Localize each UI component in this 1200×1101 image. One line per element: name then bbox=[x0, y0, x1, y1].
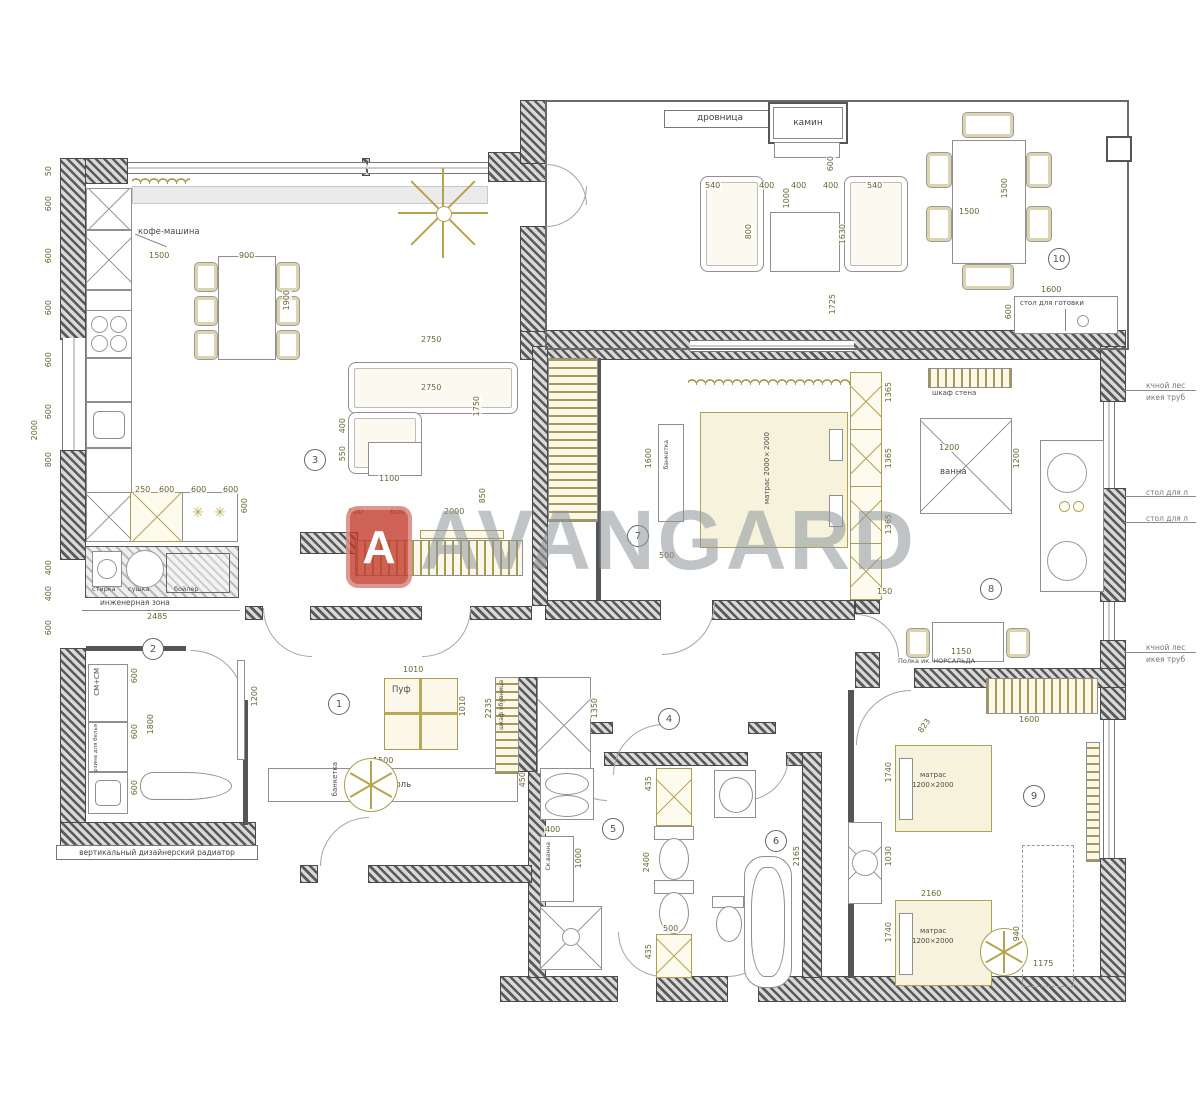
annotation: кчной лес bbox=[1146, 643, 1185, 652]
dimension-label: 150 bbox=[876, 588, 893, 596]
leader-line bbox=[1124, 652, 1196, 653]
sink-basin bbox=[93, 411, 125, 439]
dimension-label: 600 bbox=[44, 352, 54, 367]
coffee-table bbox=[770, 212, 840, 272]
wall bbox=[520, 226, 546, 332]
dimension-label: 600 bbox=[190, 486, 207, 494]
faucet bbox=[1059, 501, 1070, 512]
mattress-size: 1200×2000 bbox=[912, 782, 954, 790]
dimension-label: 50 bbox=[44, 166, 54, 176]
window-sill-radiator bbox=[1086, 742, 1100, 862]
chair bbox=[276, 330, 300, 360]
shoe-cabinet-label: шкаф обувница bbox=[499, 680, 505, 730]
dimension-label: 540 bbox=[866, 182, 883, 190]
dimension-label: 1630 bbox=[838, 224, 848, 244]
pouf-label: Пуф bbox=[392, 686, 411, 695]
washbasin-counter bbox=[1040, 440, 1104, 592]
dimension-label: 1175 bbox=[1032, 960, 1054, 968]
closet bbox=[537, 677, 591, 774]
shelf-table bbox=[932, 622, 1004, 662]
dimension-line bbox=[82, 610, 240, 611]
kitchen-cabinet bbox=[130, 492, 184, 542]
dimension-label: 400 bbox=[44, 586, 54, 601]
curtain bbox=[132, 175, 190, 184]
dimension-label: 400 bbox=[544, 826, 561, 834]
ironing-board bbox=[140, 772, 232, 800]
chair bbox=[926, 206, 952, 242]
burner-icon: ✳ bbox=[214, 505, 226, 521]
kitchen-cabinet bbox=[86, 492, 132, 542]
mattress-size: 1200×2000 bbox=[912, 938, 954, 946]
curtain bbox=[688, 376, 856, 385]
burner-ring bbox=[91, 316, 108, 333]
wall bbox=[500, 976, 618, 1002]
dimension-label: 600 bbox=[44, 300, 54, 315]
dimension-label: 400 bbox=[44, 560, 54, 575]
coffee-machine-label: кофе-машина bbox=[138, 228, 200, 237]
laundry-basket-label: корзина для белья bbox=[94, 724, 100, 779]
dimension-label: 400 bbox=[758, 182, 775, 190]
wall bbox=[470, 606, 532, 620]
dimension-label: 1740 bbox=[884, 762, 894, 782]
washbasin bbox=[545, 773, 589, 795]
burner-ring bbox=[110, 335, 127, 352]
dimension-label: 1500 bbox=[148, 252, 170, 260]
dimension-label: 800 bbox=[44, 452, 54, 467]
dimension-label: 1000 bbox=[782, 188, 792, 208]
sink-basin bbox=[95, 780, 121, 806]
wall bbox=[545, 600, 661, 620]
dimension-label: 1600 bbox=[644, 448, 654, 468]
wardrobe-cell bbox=[850, 372, 882, 431]
dimension-label: 600 bbox=[1004, 304, 1014, 319]
room-number-6: 6 bbox=[765, 830, 787, 852]
toilet-bowl bbox=[716, 906, 742, 942]
chair bbox=[1006, 628, 1030, 658]
bath-cabinet-label: Ск.ванна bbox=[546, 842, 552, 870]
wall bbox=[748, 722, 776, 734]
door-arc bbox=[263, 608, 312, 657]
shelf-label: Полка ик. НОРСАЛЬДА bbox=[898, 658, 975, 665]
dryer bbox=[126, 550, 164, 588]
bathtub bbox=[744, 856, 792, 988]
dining-table bbox=[952, 140, 1026, 264]
dimension-label: 600 bbox=[130, 724, 140, 739]
wall bbox=[86, 646, 186, 651]
star-light bbox=[398, 168, 488, 258]
bench-stool bbox=[344, 758, 398, 812]
room-number-8: 8 bbox=[980, 578, 1002, 600]
wall bbox=[60, 158, 86, 340]
dimension-label: 435 bbox=[644, 944, 654, 959]
chair bbox=[194, 296, 218, 326]
star-center bbox=[436, 206, 452, 222]
dimension-label: 450 bbox=[518, 772, 528, 787]
washbasin-counter bbox=[714, 770, 756, 818]
door-arc bbox=[320, 817, 369, 866]
wall bbox=[802, 752, 822, 978]
firewood-box-label: дровница bbox=[664, 110, 776, 128]
bench-label: банкетка bbox=[332, 762, 339, 796]
radiator-label: вертикальный дизайнерский радиатор bbox=[56, 845, 258, 860]
dimension-label: 1030 bbox=[884, 846, 894, 866]
room-number-5: 5 bbox=[602, 818, 624, 840]
dimension-label: 600 bbox=[826, 156, 836, 171]
bathtub-inner bbox=[751, 867, 785, 977]
kitchen-cabinet bbox=[86, 188, 132, 230]
washbasin bbox=[545, 795, 589, 817]
dimension-label: 1365 bbox=[884, 448, 894, 468]
wall bbox=[656, 976, 728, 1002]
dimension-label: 550 bbox=[338, 446, 348, 461]
kitchen-cabinet bbox=[182, 492, 238, 542]
hob bbox=[86, 310, 132, 358]
window bbox=[1103, 602, 1115, 640]
room-number-9: 9 bbox=[1023, 785, 1045, 807]
column-post bbox=[1106, 136, 1132, 162]
plumbing-shaft bbox=[656, 934, 692, 978]
washbasin bbox=[1047, 541, 1087, 581]
room-number-1: 1 bbox=[328, 693, 350, 715]
dimension-label: 1200 bbox=[250, 686, 260, 706]
kitchen-cabinet bbox=[86, 290, 132, 312]
window bbox=[128, 162, 366, 174]
dimension-label: 600 bbox=[130, 668, 140, 683]
dimension-label: 600 bbox=[44, 248, 54, 263]
dimension-label: 1800 bbox=[146, 714, 156, 734]
mattress-label: матрас bbox=[920, 772, 946, 780]
washer bbox=[92, 551, 122, 587]
radiator-band bbox=[986, 678, 1098, 714]
kitchen-sink bbox=[86, 402, 132, 448]
sofa bbox=[700, 176, 764, 272]
dimension-label: 400 bbox=[790, 182, 807, 190]
wardrobe-cell bbox=[850, 429, 882, 488]
chair bbox=[962, 264, 1014, 290]
dimension-label: 2235 bbox=[484, 698, 494, 718]
burner-ring bbox=[110, 316, 127, 333]
sofa bbox=[844, 176, 908, 272]
washbasin-counter bbox=[540, 768, 594, 820]
room-number-3: 3 bbox=[304, 449, 326, 471]
dimension-label: 2750 bbox=[420, 336, 442, 344]
wall bbox=[60, 450, 86, 560]
dimension-label: 600 bbox=[44, 620, 54, 635]
window bbox=[1103, 720, 1115, 858]
kitchen-cabinet bbox=[86, 358, 132, 402]
dimension-label: 600 bbox=[130, 780, 140, 795]
bathtub-square bbox=[920, 418, 1012, 514]
boiler-label: бойлер bbox=[174, 586, 199, 593]
kitchen-cabinet bbox=[86, 448, 132, 494]
room-number-10: 10 bbox=[1048, 248, 1070, 270]
dimension-label: 1500 bbox=[1000, 178, 1010, 198]
watermark-logo: A bbox=[346, 506, 412, 588]
washer-dryer-label: СМ+СМ bbox=[94, 668, 101, 696]
dimension-label: 250 bbox=[134, 486, 151, 494]
wall bbox=[310, 606, 422, 620]
dimension-label: 600 bbox=[240, 498, 250, 513]
detail-line bbox=[419, 679, 422, 749]
dimension-label: 1100 bbox=[378, 475, 400, 483]
annotation: икея труб bbox=[1146, 655, 1185, 664]
annotation: стол для л bbox=[1146, 488, 1188, 497]
dimension-label: 1750 bbox=[472, 396, 482, 416]
bench-label: банкетка bbox=[664, 440, 670, 469]
dimension-label: 1740 bbox=[884, 922, 894, 942]
cooking-table-label: стол для готовки bbox=[1020, 300, 1084, 308]
door-arc bbox=[856, 614, 899, 657]
door-arc bbox=[662, 602, 715, 655]
window bbox=[1103, 402, 1115, 488]
wall bbox=[1100, 346, 1126, 402]
engineering-zone-label: инженерная зона bbox=[100, 599, 170, 607]
dimension-label: 800 bbox=[744, 224, 754, 239]
dimension-label: 600 bbox=[44, 196, 54, 211]
dimension-label: 2160 bbox=[920, 890, 942, 898]
chair bbox=[194, 262, 218, 292]
utility-sink bbox=[88, 772, 128, 814]
dimension-label: 900 bbox=[238, 252, 255, 260]
room-number-2: 2 bbox=[142, 638, 164, 660]
chair bbox=[926, 152, 952, 188]
dimension-label: 2750 bbox=[420, 384, 442, 392]
dimension-label: 400 bbox=[338, 418, 348, 433]
washbasin bbox=[1047, 453, 1087, 493]
dimension-label: 1900 bbox=[282, 290, 292, 310]
dimension-label: 540 bbox=[704, 182, 721, 190]
wall bbox=[300, 865, 318, 883]
dimension-label: 600 bbox=[44, 404, 54, 419]
coffee-table bbox=[368, 442, 422, 476]
mirror bbox=[237, 660, 245, 760]
annotation: кчной лес bbox=[1146, 381, 1185, 390]
dimension-label: 1000 bbox=[574, 848, 584, 868]
dimension-label: 1350 bbox=[590, 698, 600, 718]
pillow bbox=[829, 429, 843, 461]
dimension-label: 1365 bbox=[884, 382, 894, 402]
washer-drum bbox=[97, 559, 117, 579]
dimension-label: 1200 bbox=[1012, 448, 1022, 468]
chair bbox=[1026, 152, 1052, 188]
wardrobe-wall-label: шкаф стена bbox=[932, 390, 976, 398]
wall bbox=[855, 600, 880, 614]
watermark-text: AVANGARD bbox=[420, 498, 917, 582]
dimension-label: 2000 bbox=[30, 420, 40, 440]
watermark-logo-letter: A bbox=[362, 520, 395, 574]
dimension-label: 2400 bbox=[642, 852, 652, 872]
dimension-label: 400 bbox=[822, 182, 839, 190]
plumbing-shaft bbox=[656, 768, 692, 826]
dimension-label: 1010 bbox=[402, 666, 424, 674]
dining-table bbox=[218, 256, 276, 360]
chair bbox=[276, 262, 300, 292]
dimension-label: 435 bbox=[644, 776, 654, 791]
dimension-label: 1150 bbox=[950, 648, 972, 656]
dryer-label: сушка bbox=[128, 586, 149, 593]
dimension-label: 940 bbox=[1012, 926, 1022, 941]
annotation: икея труб bbox=[1146, 393, 1185, 402]
dimension-label: 600 bbox=[222, 486, 239, 494]
room-number-4: 4 bbox=[658, 708, 680, 730]
fireplace: камин bbox=[768, 102, 848, 144]
door-arc bbox=[422, 608, 471, 657]
dimension-label: 1725 bbox=[828, 294, 838, 314]
leader-line bbox=[1124, 390, 1196, 391]
window bbox=[62, 338, 86, 452]
dimension-label: 1500 bbox=[958, 208, 980, 216]
shower-drain bbox=[562, 928, 580, 946]
faucet bbox=[1073, 501, 1084, 512]
wall bbox=[60, 648, 86, 848]
wall bbox=[855, 652, 880, 688]
dimension-label: 600 bbox=[158, 486, 175, 494]
dimension-label: 1200 bbox=[938, 444, 960, 452]
burner-ring bbox=[91, 335, 108, 352]
dimension-label: 1010 bbox=[458, 696, 468, 716]
chair bbox=[194, 330, 218, 360]
wall bbox=[712, 600, 855, 620]
annotation: стол для л bbox=[1146, 514, 1188, 523]
wall bbox=[517, 677, 537, 772]
floor-plan: дровница камин 540 400 400 400 540 1000 … bbox=[0, 0, 1200, 1101]
chair bbox=[1026, 206, 1052, 242]
dimension-label: 2165 bbox=[792, 846, 802, 866]
door-arc bbox=[856, 690, 911, 745]
burner-icon: ✳ bbox=[192, 505, 204, 521]
chair bbox=[906, 628, 930, 658]
bath-label: ванна bbox=[940, 468, 967, 477]
detail-line bbox=[1065, 309, 1066, 331]
dimension-label: 1600 bbox=[1018, 716, 1040, 724]
kitchen-cabinet bbox=[86, 230, 132, 290]
pillow bbox=[899, 913, 913, 975]
wardrobe-wall-cabinet bbox=[928, 368, 1012, 388]
washbasin bbox=[719, 777, 753, 813]
closet-detail bbox=[852, 850, 878, 876]
chair bbox=[962, 112, 1014, 138]
wall bbox=[245, 606, 263, 620]
pillow bbox=[899, 758, 913, 820]
wall bbox=[520, 100, 546, 164]
dimension-label: 2485 bbox=[146, 613, 168, 621]
dimension-label: 823 bbox=[916, 717, 932, 736]
toilet-bowl bbox=[659, 838, 689, 880]
wall bbox=[368, 865, 532, 883]
washer-label: стирка bbox=[92, 586, 116, 593]
detail-knob bbox=[1077, 315, 1089, 327]
dimension-label: 500 bbox=[662, 925, 679, 933]
mattress-label: матрас bbox=[920, 928, 946, 936]
dimension-label: 1600 bbox=[1040, 286, 1062, 294]
